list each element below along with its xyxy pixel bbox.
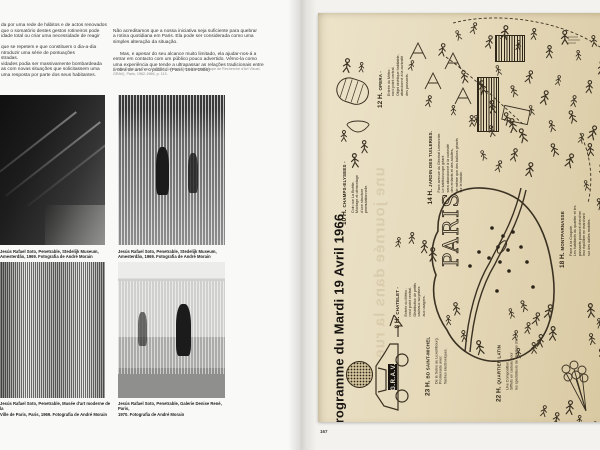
paragraph-1: Não acreditamos que a nossa iniciativa s… <box>113 29 294 46</box>
stick-figure <box>341 57 353 74</box>
drum-illustration <box>334 75 372 108</box>
photo-floor <box>45 205 105 245</box>
visitor-silhouette <box>138 312 147 346</box>
citation: Garcia Rossi; Le Parc; Morellet; Sobrino… <box>113 67 294 76</box>
stick-figure <box>459 330 468 343</box>
photo-penetrable-stedelijk-1 <box>0 95 105 245</box>
visitor-silhouette <box>156 147 169 195</box>
grav-plate-label: G.R.A.V. <box>391 363 397 390</box>
stick-figure <box>560 30 570 46</box>
photo-penetrable-stedelijk-2 <box>118 95 225 245</box>
stick-figure <box>349 153 360 170</box>
stick-figure <box>584 80 594 95</box>
text-column-left: da por uma rede de hábitos e de actos re… <box>1 23 111 78</box>
stick-figure <box>551 411 562 422</box>
photo-caption: Jesús Rafael Soto, Penetrable, Stedelijk… <box>118 249 226 260</box>
stick-figure <box>529 28 538 41</box>
photo-penetrable-denise-rene <box>118 262 225 398</box>
stick-figure <box>428 247 438 263</box>
direction-arrow-icon <box>390 315 402 337</box>
stick-figure <box>548 326 558 342</box>
stick-figure <box>445 315 453 326</box>
photo-caption: Jesús Rafael Soto, Penetrable, Galerie D… <box>118 401 230 417</box>
stick-figure <box>515 348 522 359</box>
stick-figure <box>487 100 497 115</box>
stick-figure <box>575 50 583 61</box>
stick-figure <box>585 303 596 320</box>
stick-figure <box>358 62 366 73</box>
photo-caption: Jesús Rafael Soto, Penetrable, Musée d'a… <box>0 401 112 417</box>
stick-figure <box>545 45 554 59</box>
visitor-silhouette <box>188 153 198 193</box>
stick-figure <box>360 140 369 154</box>
stick-figure <box>450 105 457 116</box>
hanging-strands <box>118 95 225 245</box>
bowl-illustration <box>347 121 369 132</box>
hanging-strands <box>118 281 225 374</box>
stick-figure <box>472 115 480 127</box>
stick-figure <box>530 342 538 355</box>
right-page: une journée dans la rue Programme du Mar… <box>300 0 600 450</box>
stick-figure <box>595 318 600 330</box>
photo-shading <box>0 262 105 398</box>
tiny-scribble-text <box>568 37 580 43</box>
stick-figure <box>407 232 416 245</box>
book-spread: da por uma rede de hábitos e de actos re… <box>0 0 600 450</box>
visitor-silhouette <box>176 304 191 356</box>
photo-caption: Jesús Rafael Soto, Penetrable, Stedelijk… <box>0 249 108 260</box>
left-page: da por uma rede de hábitos e de actos re… <box>0 0 300 450</box>
grav-vehicle: G.R.A.V. <box>360 340 420 414</box>
grav-programme-poster: une journée dans la rue Programme du Mar… <box>318 13 600 422</box>
photo-penetrable-paris <box>0 262 105 398</box>
page-number: 167 <box>320 429 328 434</box>
stick-figure <box>576 415 584 422</box>
stick-figure <box>585 143 595 158</box>
stick-figure <box>564 399 576 416</box>
stick-figure <box>340 130 348 143</box>
stick-figure <box>589 35 598 48</box>
stick-figure <box>597 60 600 76</box>
